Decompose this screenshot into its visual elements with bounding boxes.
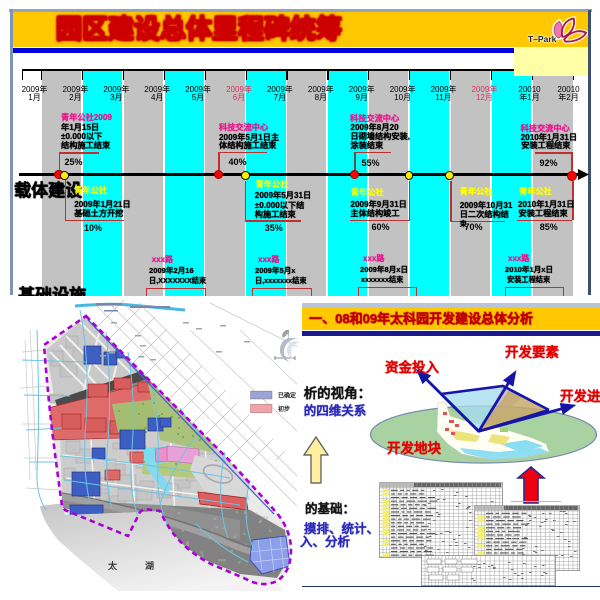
- svg-text:已确定: 已确定: [278, 392, 296, 400]
- svg-text:太湖: 太湖: [107, 560, 182, 571]
- svg-text:初步: 初步: [278, 405, 290, 413]
